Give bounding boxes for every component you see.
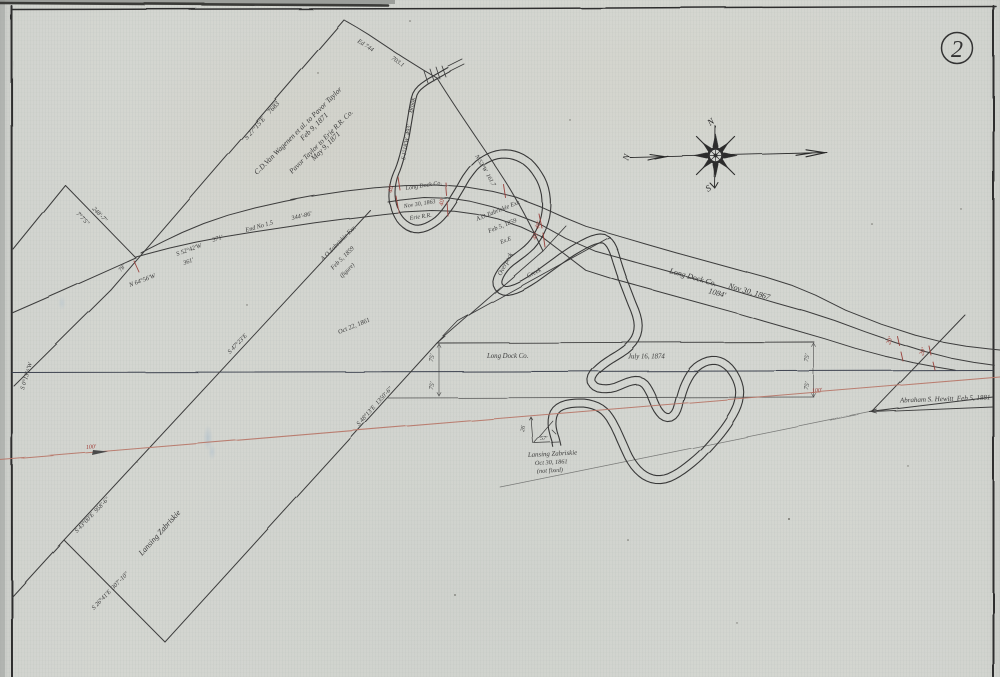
svg-text:57': 57' — [540, 436, 548, 442]
svg-text:100': 100' — [812, 388, 823, 395]
svg-text:Long Dock Co.: Long Dock Co. — [486, 353, 529, 360]
svg-text:July 16, 1874: July 16, 1874 — [628, 354, 665, 361]
svg-text:100': 100' — [86, 444, 97, 451]
svg-text:371': 371' — [211, 234, 225, 245]
svg-text:Nov 30, 1863: Nov 30, 1863 — [402, 199, 436, 210]
svg-text:1084': 1084' — [707, 286, 727, 300]
svg-text:Creek: Creek — [526, 267, 543, 280]
svg-text:Erie R.R.: Erie R.R. — [408, 213, 432, 223]
svg-text:Lansing Zabriskie: Lansing Zabriskie — [527, 449, 578, 459]
svg-text:Long Dock Co.: Long Dock Co. — [667, 266, 717, 288]
svg-text:Brook: Brook — [407, 97, 417, 113]
svg-text:Lansing Zabriskie: Lansing Zabriskie — [136, 508, 182, 558]
svg-text:S 1°18'W 493': S 1°18'W 493' — [400, 124, 413, 161]
svg-text:75': 75' — [803, 353, 811, 363]
svg-text:7°7'5": 7°7'5" — [75, 211, 91, 228]
svg-text:S 48°13'E 1350'-6": S 48°13'E 1350'-6" — [355, 385, 394, 427]
svg-text:Abraham S. Hewitt Feb 5, 1881: Abraham S. Hewitt Feb 5, 1881 — [899, 393, 991, 404]
svg-text:344'-86': 344'-86' — [290, 210, 313, 222]
svg-text:N 64°56'W: N 64°56'W — [127, 272, 157, 289]
svg-text:S 27°15'E 7683: S 27°15'E 7683 — [243, 99, 282, 141]
svg-text:75': 75' — [803, 381, 811, 391]
svg-text:S 43°00'E 958'-6": S 43°00'E 958'-6" — [73, 496, 111, 535]
svg-text:Nov 30, 1867: Nov 30, 1867 — [726, 281, 772, 302]
svg-text:75': 75' — [428, 381, 436, 391]
svg-text:S 0°13½'W: S 0°13½'W — [19, 361, 34, 391]
svg-text:2: 2 — [951, 37, 963, 63]
svg-text:40': 40' — [387, 184, 395, 194]
svg-text:N: N — [705, 115, 717, 128]
svg-text:20': 20' — [885, 335, 894, 345]
svg-text:Ex.E: Ex.E — [499, 236, 513, 246]
svg-text:26: 26 — [520, 425, 527, 432]
svg-text:S 52°42'W: S 52°42'W — [175, 242, 203, 258]
svg-text:361': 361' — [181, 256, 195, 267]
svg-text:End No 1.5: End No 1.5 — [244, 219, 274, 234]
svg-text:Long Dock Co.: Long Dock Co. — [404, 180, 442, 192]
svg-text:S 26°41'E 307'-10": S 26°41'E 307'-10" — [90, 570, 130, 611]
svg-text:N: N — [620, 152, 632, 163]
svg-text:Feb 5, 1859: Feb 5, 1859 — [486, 217, 518, 236]
svg-text:(not fixed): (not fixed) — [537, 467, 563, 475]
svg-text:Oct 22, 1861: Oct 22, 1861 — [337, 317, 371, 336]
svg-text:Oct 30, 1861: Oct 30, 1861 — [535, 458, 568, 467]
svg-text:75': 75' — [428, 353, 436, 363]
svg-text:Ed 744: Ed 744 — [355, 37, 375, 53]
